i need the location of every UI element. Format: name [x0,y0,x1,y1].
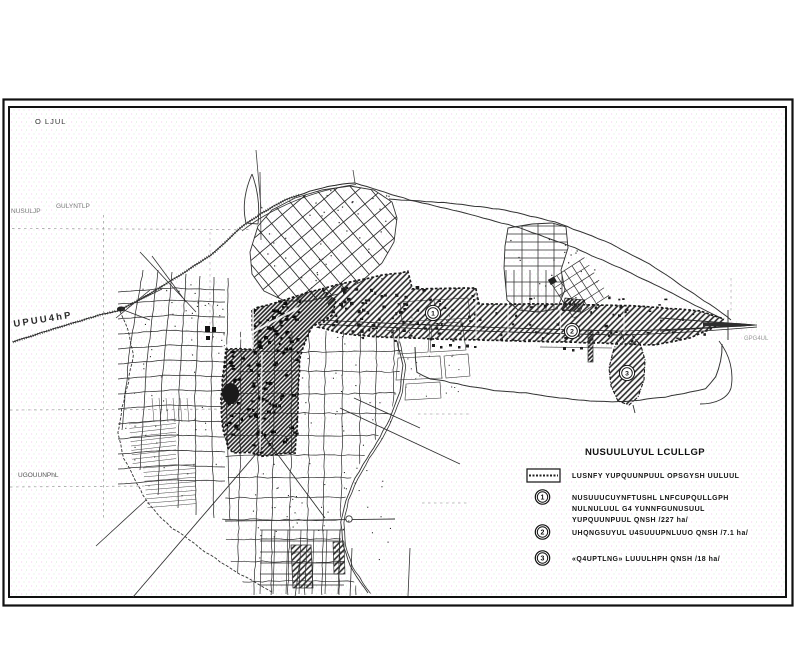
svg-text:O LJUL: O LJUL [35,117,66,126]
svg-text:NULNULUUL G4 YUNNFGUNUSUUL: NULNULUUL G4 YUNNFGUNUSUUL [572,506,705,513]
svg-text:NUSUUUCUYNFTUSHL LNFCUPQULLGPH: NUSUUUCUYNFTUSHL LNFCUPQULLGPH [572,495,729,502]
svg-text:3: 3 [541,556,545,563]
svg-text:2: 2 [541,530,545,537]
svg-text:2: 2 [570,328,574,335]
svg-text:1: 1 [431,310,435,317]
svg-text:UHQNGSUYUL U4SUUUPNLUUO QNSH /: UHQNGSUYUL U4SUUUPNLUUO QNSH /7.1 ha/ [572,530,748,537]
svg-text:1: 1 [541,495,545,502]
svg-text:NUSULJP: NUSULJP [11,208,41,215]
svg-text:UGOUUNPhL: UGOUUNPhL [18,472,59,479]
svg-text:3: 3 [625,370,629,377]
svg-text:«Q4UPTLNG» LUUULHPH QNSH /18 h: «Q4UPTLNG» LUUULHPH QNSH /18 ha/ [572,556,720,563]
svg-text:GULYNTLP: GULYNTLP [56,203,90,210]
svg-text:NUSUULUYUL LCULLGP: NUSUULUYUL LCULLGP [585,447,705,458]
svg-text:LUSNFY YUPQUUNPUUL OPSGYSH UUL: LUSNFY YUPQUUNPUUL OPSGYSH UULUUL [572,473,740,480]
svg-text:YUPQUUNPUUL QNSH /227 ha/: YUPQUUNPUUL QNSH /227 ha/ [572,517,688,524]
svg-text:GPG4UL: GPG4UL [744,336,769,342]
